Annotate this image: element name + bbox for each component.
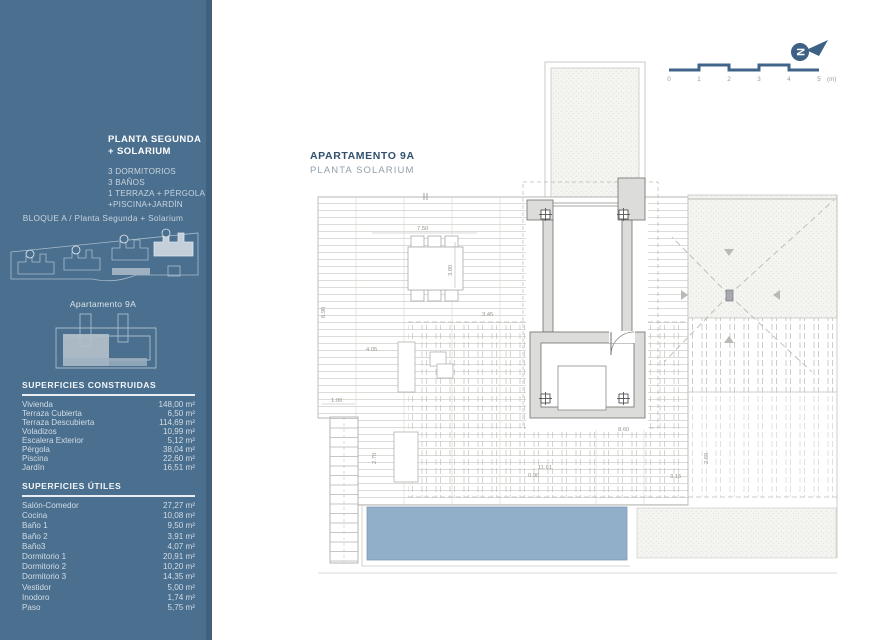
area-label: Baño 2	[22, 532, 48, 542]
area-label: Pérgola	[22, 445, 50, 454]
area-row: Terraza Cubierta6,50 m²	[22, 409, 195, 418]
area-label: Dormitorio 1	[22, 552, 66, 562]
dim-label: 3.80	[448, 265, 454, 276]
area-label: Jardín	[22, 463, 45, 472]
area-label: Terraza Descubierta	[22, 418, 94, 427]
area-value: 14,35 m²	[163, 572, 195, 582]
top-terrace	[545, 62, 645, 197]
area-value: 1,74 m²	[168, 593, 195, 603]
area-label: Dormitorio 2	[22, 562, 66, 572]
block-a-diagram	[8, 228, 204, 294]
area-row: Pérgola38,04 m²	[22, 445, 195, 454]
area-row: Inodoro1,74 m²	[22, 593, 195, 603]
apartment-label: Apartamento 9A	[0, 299, 206, 309]
area-row: Baño34,07 m²	[22, 542, 195, 552]
area-row: Baño 23,91 m²	[22, 532, 195, 542]
area-label: Dormitorio 3	[22, 572, 66, 582]
area-row: Dormitorio 120,91 m²	[22, 552, 195, 562]
area-value: 6,50 m²	[168, 409, 195, 418]
area-row: Terraza Descubierta114,69 m²	[22, 418, 195, 427]
useful-areas-table: Salón-Comedor27,27 m²Cocina10,08 m²Baño …	[22, 501, 195, 613]
dim-label: 2.60	[704, 453, 710, 464]
area-value: 10,08 m²	[163, 511, 195, 521]
area-label: Terraza Cubierta	[22, 409, 82, 418]
area-row: Piscina22,60 m²	[22, 454, 195, 463]
area-row: Voladizos10,99 m²	[22, 427, 195, 436]
dim-label: 2.70	[372, 453, 378, 464]
feature-item: 3 BAÑOS	[108, 177, 208, 188]
area-label: Inodoro	[22, 593, 49, 603]
area-value: 5,75 m²	[168, 603, 195, 613]
area-label: Vestidor	[22, 583, 51, 593]
area-row: Dormitorio 314,35 m²	[22, 572, 195, 582]
dim-label: 3.45	[482, 312, 493, 318]
area-label: Piscina	[22, 454, 48, 463]
area-value: 5,00 m²	[168, 583, 195, 593]
area-label: Baño 1	[22, 521, 48, 531]
area-label: Baño3	[22, 542, 45, 552]
area-label: Escalera Exterior	[22, 436, 84, 445]
area-value: 148,00 m²	[159, 400, 195, 409]
area-value: 16,51 m²	[163, 463, 195, 472]
area-row: Baño 19,50 m²	[22, 521, 195, 531]
feature-item: 1 TERRAZA + PÉRGOLA	[108, 188, 208, 199]
area-label: Cocina	[22, 511, 47, 521]
area-value: 114,69 m²	[159, 418, 195, 427]
useful-areas-header: SUPERFICIES ÚTILES	[22, 481, 195, 497]
stair-core	[523, 178, 658, 430]
area-value: 9,50 m²	[168, 521, 195, 531]
area-value: 10,99 m²	[163, 427, 195, 436]
apartment-9a-diagram	[50, 312, 165, 374]
area-row: Dormitorio 210,20 m²	[22, 562, 195, 572]
dim-label: 8.60	[618, 427, 629, 433]
dim-label: 0.90	[528, 473, 539, 479]
area-row: Cocina10,08 m²	[22, 511, 195, 521]
dim-label: 6.90	[321, 307, 327, 318]
area-value: 5,12 m²	[168, 436, 195, 445]
area-value: 20,91 m²	[163, 552, 195, 562]
area-value: 22,60 m²	[163, 454, 195, 463]
area-value: 3,91 m²	[168, 532, 195, 542]
area-row: Vestidor5,00 m²	[22, 583, 195, 593]
unit-outline-2	[64, 246, 100, 270]
area-row: Vivienda148,00 m²	[22, 400, 195, 409]
dim-label: 11.61	[538, 465, 552, 471]
area-value: 4,07 m²	[168, 542, 195, 552]
plan-sheet: { "sidebar": { "plan_title": "PLANTA SEG…	[0, 0, 880, 640]
feature-list: 3 DORMITORIOS3 BAÑOS1 TERRAZA + PÉRGOLA+…	[108, 166, 208, 210]
area-value: 27,27 m²	[163, 501, 195, 511]
area-row: Paso5,75 m²	[22, 603, 195, 613]
area-row: Escalera Exterior5,12 m²	[22, 436, 195, 445]
area-label: Vivienda	[22, 400, 53, 409]
exterior-stair	[330, 417, 358, 563]
unit-highlight-9a	[154, 229, 193, 256]
plan-title: PLANTA SEGUNDA + SOLARIUM	[108, 134, 204, 158]
constructed-areas-table: Vivienda148,00 m²Terraza Cubierta6,50 m²…	[22, 400, 195, 472]
garden-area	[637, 508, 836, 558]
stair-opening	[558, 366, 606, 410]
area-label: Salón-Comedor	[22, 501, 79, 511]
feature-item: +PISCINA+JARDÍN	[108, 199, 208, 210]
dim-label: 3.15	[670, 474, 681, 480]
area-label: Paso	[22, 603, 40, 613]
roof-apex-marker	[726, 290, 733, 301]
area-value: 10,20 m²	[163, 562, 195, 572]
area-label: Voladizos	[22, 427, 57, 436]
constructed-areas-header: SUPERFICIES CONSTRUIDAS	[22, 380, 195, 396]
dim-label: 1.00	[331, 398, 342, 404]
area-value: 38,04 m²	[163, 445, 195, 454]
info-sidebar: PLANTA SEGUNDA + SOLARIUM 3 DORMITORIOS3…	[0, 0, 212, 640]
block-label: BLOQUE A / Planta Segunda + Solarium	[0, 213, 206, 223]
area-row: Salón-Comedor27,27 m²	[22, 501, 195, 511]
feature-item: 3 DORMITORIOS	[108, 166, 208, 177]
dim-label: 7.50	[417, 226, 428, 232]
area-row: Jardín16,51 m²	[22, 463, 195, 472]
unit-outline-1	[18, 250, 54, 274]
floor-plan: 7.50 3.80 6.90 3.45 4.05 1.00 2.70 11.61…	[300, 40, 880, 640]
dim-label: 4.05	[366, 347, 377, 353]
